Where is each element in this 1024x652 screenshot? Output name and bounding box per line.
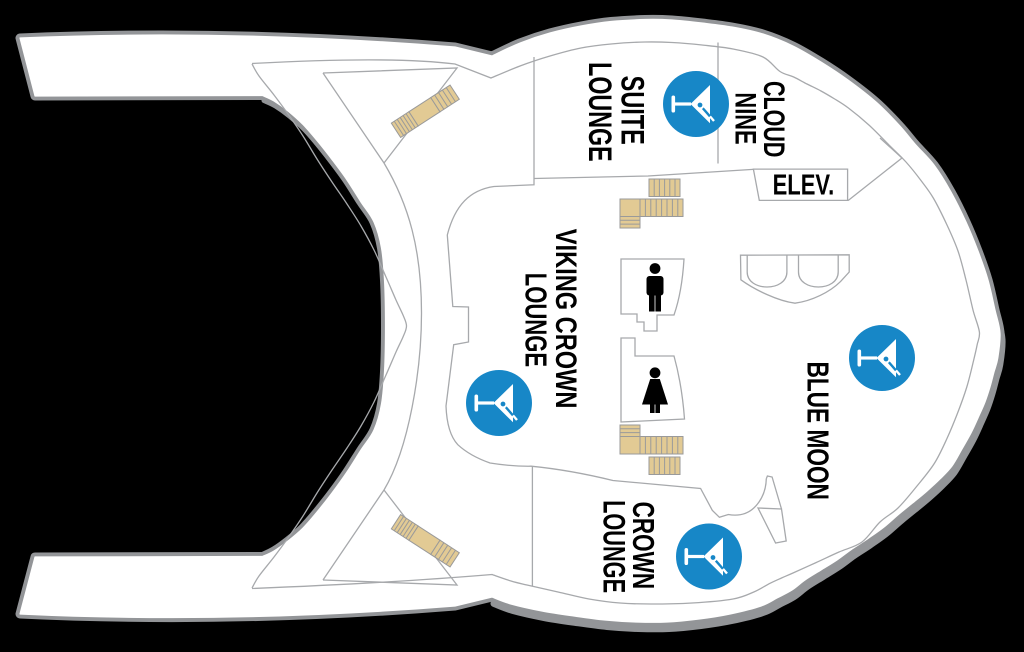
svg-text:LOUNGE: LOUNGE (597, 500, 632, 593)
svg-text:LOUNGE: LOUNGE (582, 62, 617, 162)
svg-text:LOUNGE: LOUNGE (519, 273, 554, 367)
svg-text:CLOUD: CLOUD (757, 81, 789, 157)
svg-text:NINE: NINE (729, 92, 761, 144)
svg-text:BLUE MOON: BLUE MOON (801, 361, 835, 499)
svg-text:ELEV.: ELEV. (773, 170, 835, 201)
svg-text:SUITE: SUITE (615, 76, 650, 145)
